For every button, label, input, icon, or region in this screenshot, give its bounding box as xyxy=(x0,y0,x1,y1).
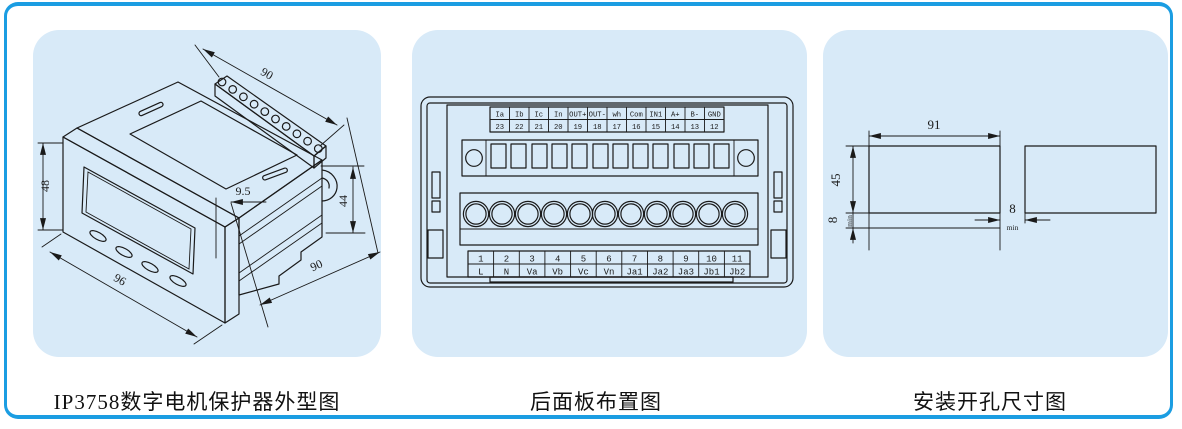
terminal-label: OUT- xyxy=(589,112,606,120)
terminal-number: 6 xyxy=(606,255,611,265)
terminal-bar-3d xyxy=(215,76,326,168)
terminal-number: 9 xyxy=(683,255,688,265)
bottom-ledge xyxy=(490,277,733,282)
terminal-number: 15 xyxy=(651,124,660,132)
terminal-number: 20 xyxy=(554,124,563,132)
terminal-number: 3 xyxy=(529,255,534,265)
terminal-label-grid-top: Ia Ib Ic In OUT+ OUT- wh Com IN1 A+ B- G… xyxy=(490,107,724,132)
terminal-label: In xyxy=(554,112,563,120)
terminal-number: 10 xyxy=(706,255,717,265)
terminal-label: Vb xyxy=(552,268,563,278)
terminal-label: L xyxy=(478,268,483,278)
terminal-label: wh xyxy=(612,112,621,120)
terminal-label: Ib xyxy=(515,112,524,120)
dim-bezel-depth: 9.5 xyxy=(236,184,251,198)
top-recess xyxy=(130,101,297,189)
terminal-number: 19 xyxy=(573,124,582,132)
ring-terminal-strip xyxy=(460,193,758,245)
dim-vertical-gap-note: min xyxy=(845,215,854,227)
terminal-number: 18 xyxy=(593,124,602,132)
caption-outline-drawing: IP3758数字电机保护器外型图 xyxy=(54,386,341,416)
dim-body-height: 44 xyxy=(336,195,350,207)
mounting-clamp xyxy=(322,170,337,201)
terminal-number: 17 xyxy=(612,124,621,132)
terminal-label-grid-bottom: 1 2 3 4 5 6 7 8 9 10 11 L N Va Vb Vc Vn … xyxy=(468,251,750,278)
terminal-number: 4 xyxy=(555,255,560,265)
terminal-number: 5 xyxy=(581,255,586,265)
square-terminals xyxy=(491,144,729,168)
terminal-label: GND xyxy=(708,112,721,120)
dim-vertical-gap: 8 xyxy=(825,217,840,224)
terminal-label: Ja2 xyxy=(652,268,668,278)
bottom-terminal-labels: L N Va Vb Vc Vn Ja1 Ja2 Ja3 Jb1 Jb2 xyxy=(478,268,745,278)
terminal-label: N xyxy=(504,268,509,278)
caption-rear-layout: 后面板布置图 xyxy=(530,386,662,416)
vent-slot xyxy=(138,102,163,117)
cutout-rect-main xyxy=(869,146,1000,213)
terminal-number: 16 xyxy=(632,124,641,132)
terminal-label: Jb1 xyxy=(703,268,719,278)
terminal-screw-holes xyxy=(218,78,322,152)
bottom-terminal-numbers: 1 2 3 4 5 6 7 8 9 10 11 xyxy=(478,255,743,265)
terminal-label: Vn xyxy=(604,268,615,278)
terminal-label: Vc xyxy=(578,268,589,278)
terminal-label: Va xyxy=(527,268,538,278)
device-top-face xyxy=(77,82,322,218)
terminal-label: Ic xyxy=(534,112,543,120)
dimension-annotations: 91 45 8 min 8 min xyxy=(825,117,1050,250)
dim-cutout-height: 45 xyxy=(828,174,843,187)
dim-front-width: 96 xyxy=(111,270,128,288)
dim-cutout-width: 91 xyxy=(928,117,941,132)
terminal-label: A+ xyxy=(671,112,680,120)
terminal-label: Com xyxy=(630,112,643,120)
terminal-number: 23 xyxy=(495,124,504,132)
terminal-number: 2 xyxy=(504,255,509,265)
terminal-label: Ja3 xyxy=(678,268,694,278)
round-terminals xyxy=(463,201,747,226)
terminal-number: 13 xyxy=(690,124,699,132)
terminal-number: 11 xyxy=(732,255,743,265)
dimension-annotations: 48 90 9.5 44 96 90 xyxy=(38,45,380,344)
terminal-number: 1 xyxy=(478,255,483,265)
dim-front-height: 48 xyxy=(38,180,52,192)
dim-horizontal-gap-note: min xyxy=(1007,223,1019,232)
strip-screw-hole xyxy=(738,150,755,167)
device-right-face xyxy=(239,160,337,295)
terminal-label: Jb2 xyxy=(729,268,745,278)
dim-bottom-depth: 90 xyxy=(308,257,325,275)
terminal-number: 8 xyxy=(658,255,663,265)
rear-layout-svg: Ia Ib Ic In OUT+ OUT- wh Com IN1 A+ B- G… xyxy=(412,30,807,357)
front-bezel xyxy=(63,128,239,323)
terminal-number: 21 xyxy=(534,124,543,132)
terminal-number: 22 xyxy=(515,124,524,132)
screw-terminal-strip xyxy=(462,140,758,176)
terminal-label: OUT+ xyxy=(569,112,586,120)
front-buttons xyxy=(88,228,187,288)
terminal-number: 12 xyxy=(710,124,719,132)
terminal-label: Ja1 xyxy=(626,268,642,278)
dim-horizontal-gap: 8 xyxy=(1009,201,1016,216)
dim-top-depth: 90 xyxy=(258,64,275,82)
cutout-rect-side xyxy=(1025,146,1156,213)
terminal-number: 14 xyxy=(671,124,680,132)
terminal-label: IN1 xyxy=(649,112,662,120)
cutout-drawing-svg: 91 45 8 min 8 min xyxy=(823,30,1168,357)
outline-drawing-svg: 48 90 9.5 44 96 90 xyxy=(35,33,385,355)
display-window xyxy=(82,167,195,274)
strip-screw-hole xyxy=(466,150,483,167)
terminal-label: B- xyxy=(690,112,699,120)
terminal-label: Ia xyxy=(495,112,504,120)
caption-mounting-cutout: 安装开孔尺寸图 xyxy=(913,386,1067,416)
terminal-number: 7 xyxy=(632,255,637,265)
